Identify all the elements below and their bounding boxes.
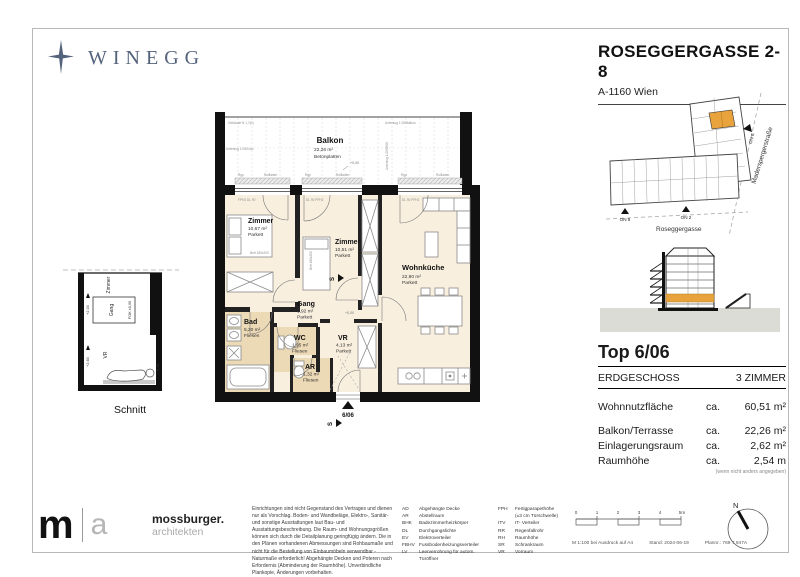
svg-text:Parkett: Parkett	[335, 253, 351, 259]
unit-title: Top 6/06	[598, 342, 786, 367]
north-arrow: N	[712, 498, 776, 554]
wall-balcony-right	[460, 112, 472, 187]
svg-text:Bett 180x200: Bett 180x200	[309, 251, 313, 270]
street-bottom-label: Roseggergasse	[656, 226, 702, 233]
svg-text:4,13 m²: 4,13 m²	[336, 343, 353, 349]
svg-text:22,90 m²: 22,90 m²	[402, 274, 421, 280]
window-1	[235, 178, 290, 195]
svg-text:+0,00: +0,00	[350, 161, 359, 165]
svg-text:Fliesen: Fliesen	[292, 349, 308, 355]
print-scale: M 1:100 bei Ausdruck auf A4	[572, 541, 633, 546]
dining-table	[418, 288, 462, 334]
svg-text:S: S	[330, 277, 336, 281]
svg-text:Gebäude N 1,7(h): Gebäude N 1,7(h)	[228, 121, 254, 125]
svg-text:Rollladen: Rollladen	[264, 173, 278, 177]
unit-row-balkon: Balkon/Terrasse ca. 22,26 m²	[598, 425, 786, 437]
svg-text:Rollladen: Rollladen	[436, 173, 450, 177]
brand-wordmark: WINEGG	[88, 47, 205, 70]
compass-needle	[738, 511, 748, 529]
svg-text:Rollladen: Rollladen	[336, 173, 350, 177]
svg-text:3,92 m²: 3,92 m²	[297, 309, 314, 315]
bathtub	[227, 365, 269, 389]
schnitt-title: Schnitt	[114, 404, 146, 416]
kitchen-counter	[398, 368, 470, 384]
unit-row-raumhoehe: Raumhöhe ca. 2,54 m	[598, 455, 786, 467]
svg-text:+2,64: +2,64	[86, 357, 90, 367]
svg-text:DL 90 FPH2: DL 90 FPH2	[402, 198, 420, 202]
svg-text:Unterzug 1.05/OKfb: Unterzug 1.05/OKfb	[385, 142, 389, 170]
room-label-vr: VR	[338, 335, 348, 342]
highlighted-unit	[709, 110, 735, 129]
entrance-marker: 6/06	[342, 401, 354, 419]
room-label-gang: Gang	[297, 301, 315, 308]
highlighted-floor	[666, 294, 714, 302]
svg-text:ON 6: ON 6	[748, 132, 756, 144]
section-base	[658, 308, 718, 311]
svg-text:10,51 m²: 10,51 m²	[335, 247, 354, 253]
ground-band	[600, 308, 780, 332]
svg-text:S: S	[328, 422, 334, 426]
vr-wardrobe	[358, 326, 376, 368]
svg-text:Rgp: Rgp	[238, 173, 244, 177]
svg-text:ON 2: ON 2	[681, 215, 692, 220]
wall-left	[215, 112, 225, 402]
room-label-balkon: Balkon	[317, 136, 344, 145]
logo-a: a	[91, 513, 108, 537]
building-wing-bottom	[610, 154, 739, 205]
rooms-label: 3 ZIMMER	[736, 372, 786, 384]
unit-floor-row: ERDGESCHOSS 3 ZIMMER	[598, 367, 786, 389]
svg-text:1,32 m²: 1,32 m²	[303, 372, 320, 378]
svg-text:0: 0	[575, 510, 578, 515]
svg-text:6/06: 6/06	[342, 413, 354, 419]
schnitt-room-top: Zimmer	[106, 276, 112, 293]
winegg-logo: WINEGG	[48, 40, 205, 76]
unit-note: (wenn nicht anders angegeben)	[598, 469, 786, 475]
architect-sub: architekten	[152, 526, 242, 538]
print-date: Stand: 2024-06-19	[649, 541, 689, 546]
site-plan: ON 8 ON 2 ON 6 Roseggergasse Madersperge…	[598, 88, 790, 238]
scale-bar: 0 1 2 3 4 5m	[572, 506, 702, 532]
disclaimer-text: Einrichtungen sind nicht Gegenstand des …	[252, 506, 398, 577]
svg-text:10,67 m²: 10,67 m²	[248, 226, 267, 232]
svg-text:1,95 m²: 1,95 m²	[292, 343, 309, 349]
building-section	[598, 246, 784, 336]
balkon-floor: Betonplatten	[314, 154, 341, 160]
person-figure	[107, 369, 154, 381]
svg-text:Rgp: Rgp	[401, 173, 407, 177]
unit-row-einlagerungsraum: Einlagerungsraum ca. 2,62 m²	[598, 440, 786, 452]
room-label-bad: Bad	[244, 319, 257, 326]
north-label: N	[733, 501, 738, 510]
svg-text:Parkett: Parkett	[336, 349, 352, 355]
balkon-area: 22,26 m²	[314, 147, 333, 153]
floor-plan: Balkon 22,26 m² Betonplatten Zimmer 10,6…	[202, 110, 482, 440]
window-2	[302, 178, 362, 195]
logo-divider	[82, 508, 83, 542]
svg-text:Parkett: Parkett	[297, 315, 313, 321]
svg-text:5m: 5m	[679, 510, 686, 515]
architect-name: mossburger.	[152, 512, 242, 526]
wardrobe-1	[227, 272, 273, 292]
svg-text:ON 8: ON 8	[620, 217, 631, 222]
svg-text:Bett 180x200: Bett 180x200	[250, 251, 269, 255]
entrance-opening	[336, 392, 360, 402]
svg-text:Fliesen: Fliesen	[244, 333, 260, 339]
svg-text:Unterzug 1.05/Balkon: Unterzug 1.05/Balkon	[385, 121, 416, 125]
svg-text:4: 4	[659, 510, 662, 515]
washing-machine	[227, 346, 241, 360]
svg-text:Parkett: Parkett	[402, 280, 418, 286]
svg-text:DL 90 FPH2: DL 90 FPH2	[306, 198, 324, 202]
svg-text:2: 2	[617, 510, 620, 515]
window-3	[398, 178, 462, 195]
floor-label: ERDGESCHOSS	[598, 372, 736, 384]
architect-logo: m a	[38, 504, 107, 546]
room-label-wohnkueche: Wohnküche	[402, 263, 444, 272]
room-label-zimmer1: Zimmer	[248, 218, 274, 225]
svg-text:3: 3	[638, 510, 641, 515]
architect-name-block: mossburger. architekten	[152, 512, 242, 538]
project-title: ROSEGGERGASSE 2-8	[598, 42, 786, 82]
schnitt-room-bottom: VR	[103, 351, 109, 358]
room-label-wc: WC	[294, 335, 306, 342]
schnitt-fok: FOK ±0,00	[128, 301, 132, 319]
svg-text:FPH2 DL 90: FPH2 DL 90	[238, 198, 256, 202]
svg-text:+2,04: +2,04	[86, 305, 90, 315]
svg-text:Parkett: Parkett	[248, 232, 264, 238]
schnitt-section: Zimmer Gang FOK ±0,00 VR +2,04 +2,64 -0,…	[55, 240, 185, 420]
wall-right	[470, 185, 480, 402]
svg-text:Fliesen: Fliesen	[303, 378, 319, 384]
room-label-zimmer2: Zimmer	[335, 239, 361, 246]
svg-text:Rgp: Rgp	[305, 173, 311, 177]
sink-icon	[406, 373, 412, 379]
svg-text:+0,00: +0,00	[345, 311, 354, 315]
winegg-star-icon	[48, 40, 74, 76]
svg-text:-0,16: -0,16	[156, 364, 160, 373]
room-label-ar: AR	[305, 364, 315, 371]
logo-m: m	[38, 510, 74, 540]
unit-row-wohnnutzflaeche: Wohnnutzfläche ca. 60,51 m²	[598, 401, 786, 413]
schnitt-room-mid: Gang	[109, 304, 115, 316]
section-ramp	[726, 294, 750, 308]
svg-text:1: 1	[596, 510, 599, 515]
svg-text:5,20 m²: 5,20 m²	[244, 327, 261, 333]
legend-column-2: FPHFertigparapethöhe (±3 cm Türschwelle)…	[498, 506, 570, 556]
svg-text:Unterzug 1.05/0,kw: Unterzug 1.05/0,kw	[226, 147, 254, 151]
legend-column-1: ADAbgehängte Decke ARAbstellraum BHKBade…	[402, 506, 494, 564]
coffee-table	[425, 232, 438, 257]
unit-info-block: Top 6/06 ERDGESCHOSS 3 ZIMMER Wohnnutzfl…	[598, 342, 786, 475]
